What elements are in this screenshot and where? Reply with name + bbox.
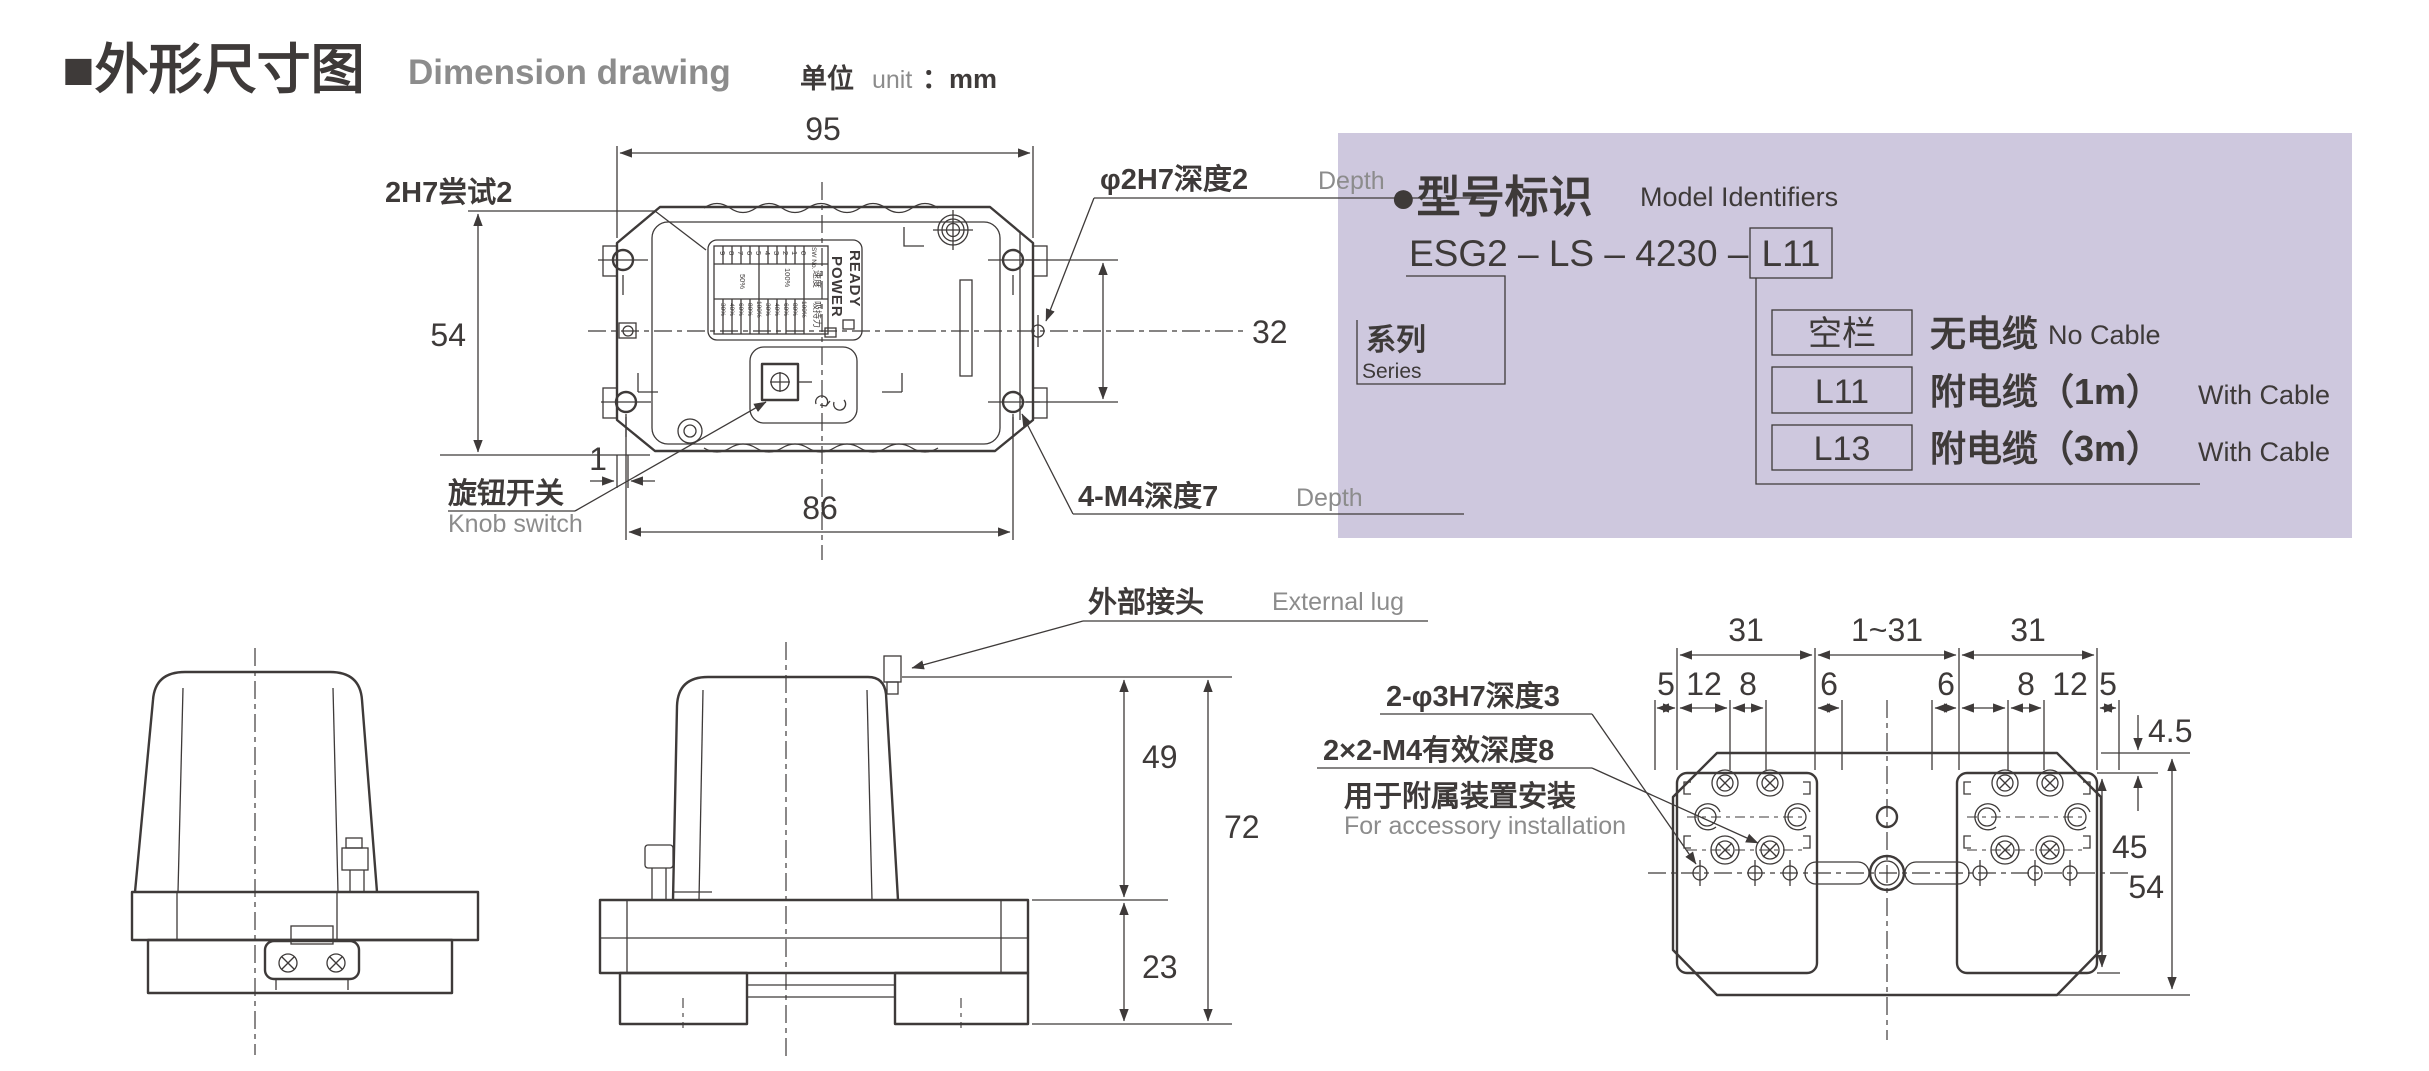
model-code-suffix: L11 xyxy=(1762,233,1821,274)
option-code: L11 xyxy=(1815,373,1869,411)
corner-mark xyxy=(904,227,924,246)
page-header: ■外形尺寸图 Dimension drawing 单位 unit ：mm xyxy=(62,40,997,100)
top-view-drawing: SW No. 速度 吸持力 0 1 2 3 4 5 6 7 8 9 100% 5… xyxy=(385,111,1484,560)
external-lug xyxy=(884,656,901,694)
knob-label: 旋钮开关 xyxy=(448,477,564,510)
mounting-ear xyxy=(1033,246,1047,276)
bracket-mark xyxy=(1803,782,1810,794)
power-led-icon xyxy=(825,328,836,337)
dim-54-bottom: 54 xyxy=(2128,869,2164,905)
page-subtitle: Dimension drawing xyxy=(408,53,731,92)
dim-72: 72 xyxy=(1224,809,1260,845)
mounting-ear xyxy=(1033,388,1047,418)
dip-force-value: 60% xyxy=(782,303,789,316)
ready-led-icon xyxy=(843,320,854,329)
dim-5: 5 xyxy=(2099,666,2117,702)
dim-23: 23 xyxy=(1142,949,1178,985)
knob-switch xyxy=(750,347,857,423)
shaft-boss-bottom-left xyxy=(678,419,702,443)
pin-left-label: 2H7尝试2 xyxy=(385,176,512,209)
dip-force-value: 60% xyxy=(737,303,744,316)
model-identifier-panel: ●型号标识 Model Identifiers ESG2 – LS – 4230… xyxy=(1338,133,2352,538)
unit-label-en: unit xyxy=(872,66,912,94)
dip-header-force: 吸持力 xyxy=(812,301,823,328)
model-code-prefix: ESG2 – LS – 4230 – xyxy=(1409,233,1749,274)
page-title: ■外形尺寸图 xyxy=(62,40,365,100)
dip-number: 9 xyxy=(718,251,727,255)
dip-force-value: 80% xyxy=(746,303,753,316)
corner-mark xyxy=(638,373,658,392)
option-desc-zh: 无电缆 xyxy=(1930,313,2038,354)
dimension-drawing-page: ■外形尺寸图 Dimension drawing 单位 unit ：mm ●型号… xyxy=(0,0,2429,1071)
dim-31-left: 31 xyxy=(1728,612,1764,648)
dip-force-value: 40% xyxy=(773,303,780,316)
dip-number: 5 xyxy=(754,251,763,255)
dim-8: 8 xyxy=(1739,666,1757,702)
dim-6: 6 xyxy=(1820,666,1838,702)
lug-label: 外部接头 xyxy=(1088,585,1204,619)
pins-label: 2-φ3H7深度3 xyxy=(1386,680,1560,713)
dip-force-value: 100% xyxy=(800,301,807,318)
dip-force-value: 40% xyxy=(728,303,735,316)
shaft-boss-top-right xyxy=(933,210,973,250)
pin-right-label: φ2H7深度2 xyxy=(1100,163,1248,196)
series-label-en: Series xyxy=(1362,360,1422,383)
dip-number: 3 xyxy=(772,251,781,255)
dip-force-value: 30% xyxy=(719,303,726,316)
dip-number: 4 xyxy=(763,251,772,255)
option-desc-zh: 附电缆（3m） xyxy=(1930,428,2162,469)
dim-54: 54 xyxy=(430,317,466,353)
pad-features-mirror xyxy=(1964,770,2090,886)
dip-header-speed: 速度 xyxy=(812,270,823,288)
option-code: L13 xyxy=(1814,430,1871,468)
dip-number: 7 xyxy=(736,251,745,255)
pad-features xyxy=(1684,770,1810,886)
side-view-drawing xyxy=(132,648,478,1055)
dim-1-31: 1~31 xyxy=(1851,612,1923,648)
dim-86: 86 xyxy=(802,490,838,526)
dim-31-right: 31 xyxy=(2010,612,2046,648)
dim-45: 45 xyxy=(2112,829,2148,865)
holes-label: 4-M4深度7 xyxy=(1078,480,1218,513)
dim-95: 95 xyxy=(805,111,841,147)
dip-force-value: 30% xyxy=(764,303,771,316)
option-desc-zh: 附电缆（1m） xyxy=(1930,371,2162,412)
dip-number: 1 xyxy=(790,251,799,255)
unit-label-zh: 单位 xyxy=(800,63,854,94)
option-desc-en: With Cable xyxy=(2198,437,2330,467)
bracket-mark xyxy=(1803,836,1810,848)
dip-speed-value: 100% xyxy=(783,268,792,288)
bottom-view-dimensions: 31 1~31 31 5 12 8 6 6 8 12 xyxy=(1317,612,2192,995)
dip-number: 8 xyxy=(727,251,736,255)
pin-right-label-en: Depth xyxy=(1318,167,1385,195)
option-desc-en: No Cable xyxy=(2048,320,2161,350)
unit-value: ：mm xyxy=(922,64,997,94)
series-label-zh: 系列 xyxy=(1366,324,1426,357)
dim-32: 32 xyxy=(1252,314,1288,350)
dip-force-value: 100% xyxy=(755,301,762,318)
side-lug xyxy=(342,838,368,892)
panel-heading-en: Model Identifiers xyxy=(1640,182,1838,212)
corner-mark xyxy=(882,373,902,392)
dip-speed-value: 50% xyxy=(738,274,747,289)
dim-6: 6 xyxy=(1937,666,1955,702)
bottom-view-drawing: 31 1~31 31 5 12 8 6 6 8 12 xyxy=(1317,612,2192,1040)
bracket-mark xyxy=(1684,836,1691,848)
dim-4p5: 4.5 xyxy=(2148,713,2192,749)
option-desc-en: With Cable xyxy=(2198,380,2330,410)
side-connector xyxy=(265,926,359,990)
power-label: POWER xyxy=(828,256,845,318)
option-code: 空栏 xyxy=(1808,315,1876,353)
m4-label-2: 用于附属装置安装 xyxy=(1344,780,1576,813)
knob-label-en: Knob switch xyxy=(448,510,583,538)
side-base-block xyxy=(148,940,452,993)
dip-header-swno: SW No. xyxy=(810,247,817,270)
m4-label: 2×2-M4有效深度8 xyxy=(1323,734,1554,767)
dim-8: 8 xyxy=(2017,666,2035,702)
holes-label-en: Depth xyxy=(1296,484,1363,512)
dip-number: 0 xyxy=(799,251,808,255)
front-connector xyxy=(645,845,712,900)
cover-face xyxy=(652,222,1000,444)
dip-number: 2 xyxy=(781,251,790,255)
dim-49: 49 xyxy=(1142,739,1178,775)
side-body xyxy=(135,672,377,892)
m4-label-en: For accessory installation xyxy=(1344,812,1626,840)
front-flange xyxy=(600,900,1028,973)
dip-force-value: 80% xyxy=(791,303,798,316)
drawing-canvas: ■外形尺寸图 Dimension drawing 单位 unit ：mm ●型号… xyxy=(0,0,2429,1071)
dim-12: 12 xyxy=(2052,666,2088,702)
lug-label-en: External lug xyxy=(1272,588,1404,616)
dip-switch-panel: SW No. 速度 吸持力 0 1 2 3 4 5 6 7 8 9 100% 5… xyxy=(708,240,863,340)
mounting-ear xyxy=(603,246,617,276)
dim-1: 1 xyxy=(589,441,607,477)
front-view-drawing: 49 23 72 外部接头 External lug xyxy=(600,585,1428,1058)
side-flange xyxy=(132,892,478,940)
dip-number: 6 xyxy=(745,251,754,255)
rotation-indicator-icon xyxy=(816,396,846,410)
top-view-dimensions: 95 54 2H7尝试2 1 86 32 φ2H7深度2 xyxy=(385,111,1484,540)
dim-5: 5 xyxy=(1657,666,1675,702)
ready-label: READY xyxy=(846,250,863,308)
dim-12: 12 xyxy=(1686,666,1722,702)
side-slot xyxy=(960,280,972,376)
